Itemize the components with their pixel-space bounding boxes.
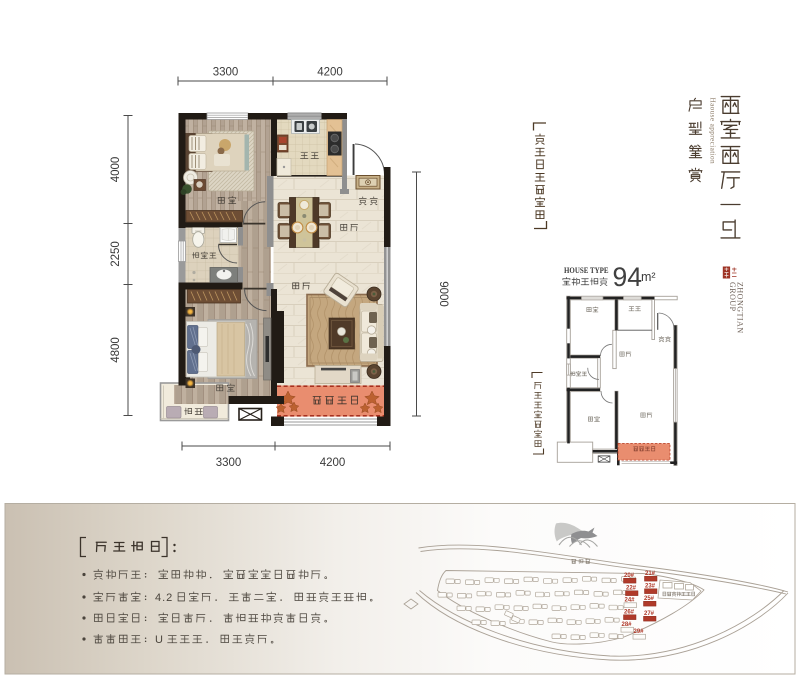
svg-text:3300: 3300: [216, 457, 242, 469]
svg-text:HOUSE TYPE: HOUSE TYPE: [564, 266, 609, 275]
svg-text:Haouse appreciation: Haouse appreciation: [709, 98, 717, 164]
svg-text:4000: 4000: [110, 157, 122, 183]
svg-text:4200: 4200: [320, 457, 346, 469]
svg-text:U: U: [155, 634, 163, 646]
svg-text:3300: 3300: [213, 67, 239, 79]
svg-text:m²: m²: [641, 270, 656, 284]
svg-text:94: 94: [613, 262, 642, 292]
svg-text:GROUP: GROUP: [728, 282, 737, 312]
svg-text:4200: 4200: [317, 67, 343, 79]
svg-text:4.2: 4.2: [155, 592, 173, 604]
svg-text:9000: 9000: [437, 281, 449, 307]
svg-text:2250: 2250: [110, 241, 122, 267]
svg-text:4800: 4800: [110, 337, 122, 363]
